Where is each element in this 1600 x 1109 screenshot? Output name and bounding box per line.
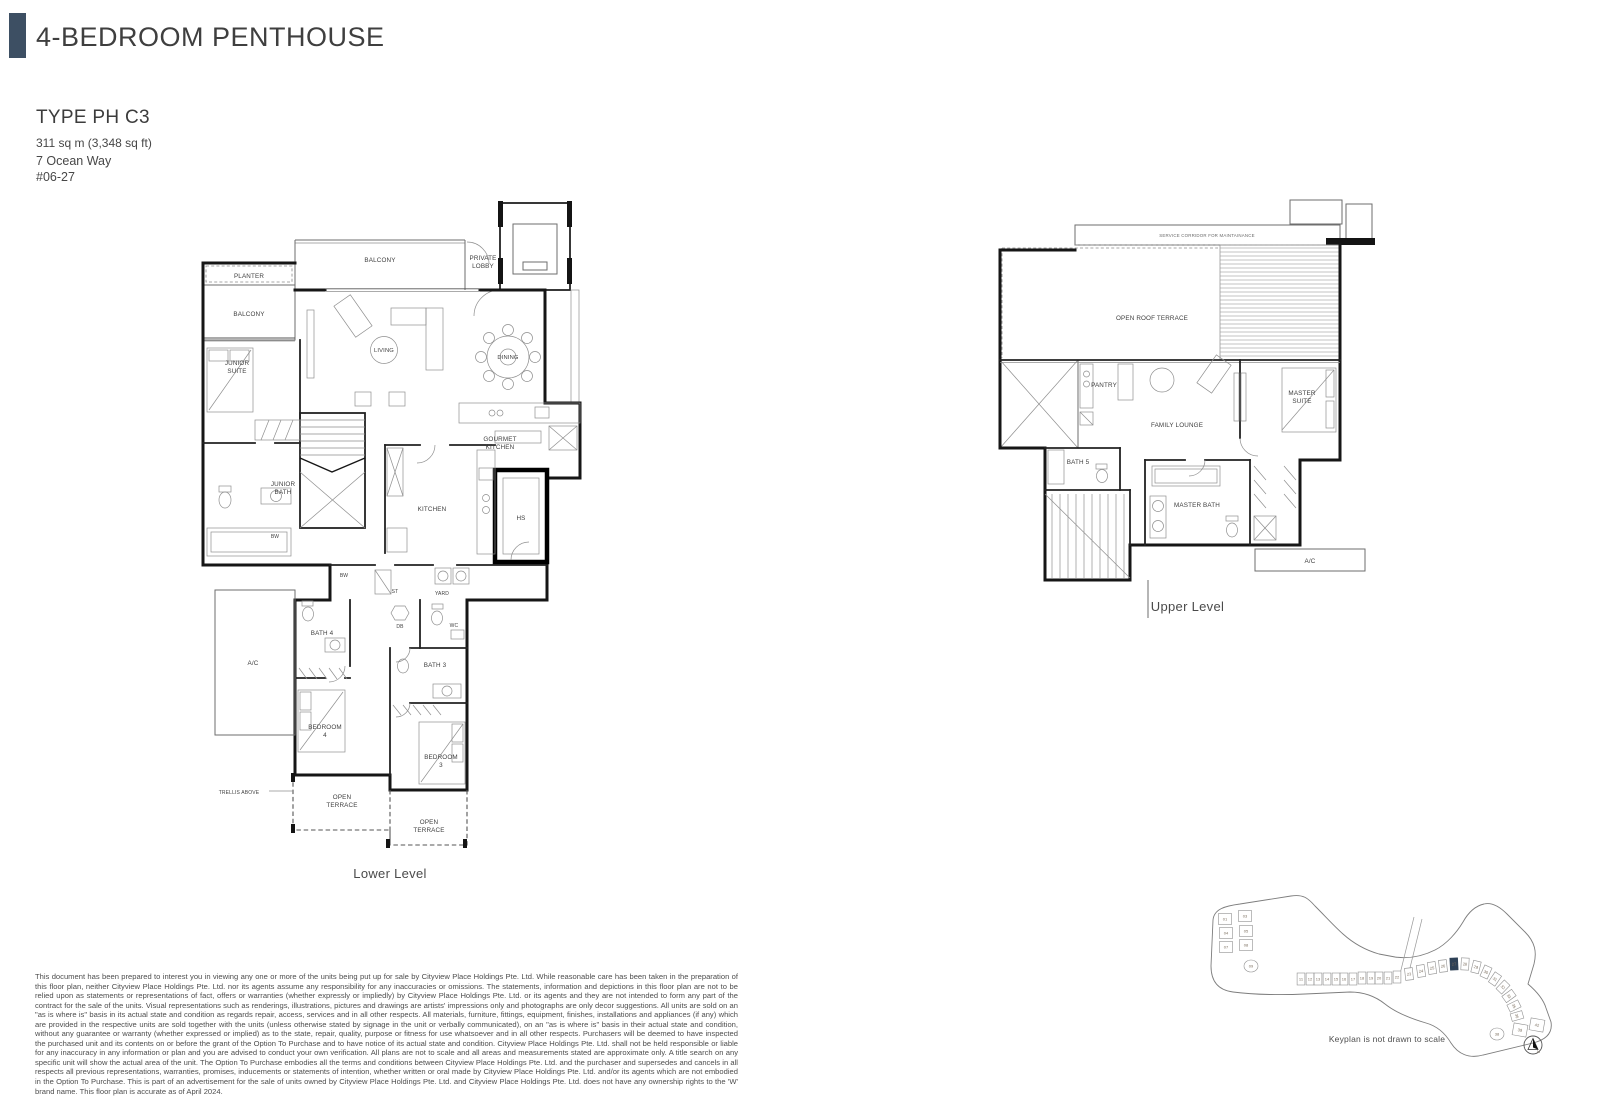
svg-text:19: 19 (1369, 976, 1374, 981)
keyplan-caption: Keyplan is not drawn to scale (1329, 1034, 1445, 1044)
unit-number: #06-27 (36, 170, 75, 184)
keyplan-unit-39: 39 (1512, 1023, 1528, 1037)
label-master-suite-1: MASTER (1288, 390, 1315, 397)
lower-stairs (300, 420, 365, 528)
label-master-bath: MASTER BATH (1174, 502, 1220, 509)
keyplan-unit-20: 20 (1375, 972, 1383, 984)
label-bw-2: BW (340, 573, 348, 579)
keyplan-unit-22: 22 (1393, 971, 1401, 983)
label-family-lounge: FAMILY LOUNGE (1151, 422, 1203, 429)
upper-stairs (1045, 494, 1130, 578)
lower-balcony-planter (203, 240, 500, 341)
label-terrace1-1: OPEN (333, 794, 352, 801)
label-balcony-left: BALCONY (233, 311, 265, 318)
label-balcony-top: BALCONY (364, 257, 396, 264)
label-bedroom3-2: 3 (439, 762, 443, 769)
unit-type: TYPE PH C3 (36, 107, 150, 129)
keyplan-unit-01: 01 (1219, 914, 1232, 925)
svg-text:08: 08 (1244, 943, 1249, 948)
lower-bath-fixtures (302, 601, 464, 698)
lower-junior-suite-furniture (207, 348, 300, 556)
upper-level-plan: SERVICE CORRIDOR FOR MAINTAINANCE OPEN R… (990, 198, 1385, 628)
upper-wardrobe (1254, 466, 1296, 540)
keyplan-unit-21: 21 (1384, 972, 1392, 984)
label-kitchen: KITCHEN (418, 506, 447, 513)
label-gourmet-1: GOURMET (483, 436, 516, 443)
lower-lift (498, 201, 579, 403)
keyplan-unit-11: 11 (1297, 973, 1305, 985)
upper-pantry-fixtures (1080, 364, 1093, 425)
north-compass: N (1524, 1036, 1542, 1054)
keyplan-unit-19: 19 (1367, 972, 1375, 984)
svg-text:01: 01 (1223, 917, 1228, 922)
keyplan-unit-12: 12 (1306, 973, 1314, 985)
svg-text:16: 16 (1342, 977, 1347, 982)
upper-service-corridor (1075, 200, 1375, 245)
label-bw-1: BW (271, 534, 279, 540)
upper-roof-areas (1000, 245, 1340, 448)
keyplan-unit-23: 23 (1404, 968, 1413, 981)
upper-lounge-furniture (1118, 355, 1246, 421)
svg-text:14: 14 (1325, 977, 1330, 982)
label-bath3: BATH 3 (424, 662, 447, 669)
label-bedroom4-2: 4 (323, 732, 327, 739)
lower-windows (325, 289, 480, 292)
label-bedroom3-1: BEDROOM (424, 754, 458, 761)
keyplan-unit-26: 26 (1438, 960, 1447, 973)
keyplan-unit-29: 29 (1471, 960, 1481, 974)
upper-bath5-fixtures (1048, 450, 1108, 484)
label-private-lobby-2: LOBBY (472, 263, 494, 270)
keyplan-unit-36: 36 (1510, 1011, 1524, 1022)
keyplan-unit-07: 07 (1220, 942, 1233, 953)
svg-text:09: 09 (1249, 964, 1254, 969)
label-bedroom4-1: BEDROOM (308, 724, 342, 731)
svg-text:17: 17 (1351, 977, 1356, 982)
lower-level-plan: BALCONY PLANTER BALCONY PRIVATE LOBBY JU… (195, 198, 585, 858)
north-label: N (1537, 1049, 1540, 1054)
keyplan-unit-14: 14 (1323, 973, 1331, 985)
keyplan-unit-08: 08 (1240, 940, 1253, 951)
label-wc: WC (450, 623, 459, 629)
label-junior-suite-2: SUITE (227, 368, 246, 375)
label-trellis: TRELLIS ABOVE (219, 790, 260, 796)
keyplan-unit-35: 35 (1507, 1000, 1521, 1012)
keyplan-unit-03: 03 (1239, 911, 1252, 922)
svg-text:04: 04 (1224, 931, 1229, 936)
svg-text:21: 21 (1386, 976, 1391, 981)
label-bath5: BATH 5 (1067, 459, 1090, 466)
page-title: 4-BEDROOM PENTHOUSE (36, 22, 385, 53)
keyplan-unit-42: 42 (1529, 1018, 1545, 1032)
label-junior-bath-2: BATH (275, 489, 292, 496)
label-gourmet-2: KITCHEN (486, 444, 515, 451)
label-junior-bath-1: JUNIOR (271, 481, 296, 488)
keyplan: 0103040507080911121314151617181920212223… (1195, 882, 1560, 1062)
legal-disclaimer: This document has been prepared to inter… (35, 972, 738, 1096)
keyplan-unit-38: 38 (1490, 1028, 1504, 1040)
svg-text:13: 13 (1316, 977, 1321, 982)
svg-text:38: 38 (1495, 1032, 1500, 1037)
keyplan-unit-15: 15 (1332, 973, 1340, 985)
label-terrace2-2: TERRACE (413, 827, 444, 834)
label-living: LIVING (374, 348, 394, 354)
accent-bar (9, 13, 26, 58)
keyplan-unit-05: 05 (1240, 926, 1253, 937)
label-upper-ac: A/C (1305, 558, 1316, 565)
label-st: ST (392, 589, 399, 595)
keyplan-unit-25: 25 (1427, 962, 1436, 975)
keyplan-unit-30: 30 (1480, 965, 1492, 979)
label-terrace1-2: TERRACE (326, 802, 357, 809)
svg-text:20: 20 (1377, 976, 1382, 981)
keyplan-unit-28: 28 (1461, 958, 1469, 970)
svg-text:03: 03 (1243, 914, 1248, 919)
label-bath4: BATH 4 (311, 630, 334, 637)
label-terrace2-1: OPEN (420, 819, 439, 826)
svg-text:05: 05 (1244, 929, 1249, 934)
keyplan-unit-18: 18 (1358, 972, 1366, 984)
keyplan-unit-27: 27 (1450, 958, 1458, 970)
keyplan-unit-24: 24 (1416, 965, 1425, 978)
label-yard: YARD (435, 591, 449, 597)
label-service-corridor: SERVICE CORRIDOR FOR MAINTAINANCE (1159, 233, 1254, 238)
label-dining: DINING (497, 355, 519, 361)
upper-level-caption: Upper Level (990, 599, 1385, 614)
keyplan-unit-17: 17 (1349, 973, 1357, 985)
label-private-lobby-1: PRIVATE (469, 255, 496, 262)
svg-text:12: 12 (1308, 977, 1313, 982)
svg-text:22: 22 (1395, 975, 1400, 980)
svg-text:07: 07 (1224, 945, 1229, 950)
unit-address: 7 Ocean Way (36, 154, 111, 169)
label-pantry: PANTRY (1091, 382, 1118, 389)
label-open-roof-terrace: OPEN ROOF TERRACE (1116, 315, 1188, 322)
keyplan-unit-04: 04 (1220, 928, 1233, 939)
label-master-suite-2: SUITE (1292, 398, 1311, 405)
keyplan-unit-16: 16 (1340, 973, 1348, 985)
label-junior-suite-1: JUNIOR (225, 360, 250, 367)
lower-yard-fixtures (375, 568, 469, 620)
lower-room-labels: BALCONY PLANTER BALCONY PRIVATE LOBBY JU… (219, 255, 526, 834)
keyplan-units-layer: 0103040507080911121314151617181920212223… (1219, 911, 1545, 1041)
svg-text:18: 18 (1360, 976, 1365, 981)
label-hs: HS (516, 515, 525, 522)
keyplan-unit-31: 31 (1488, 972, 1501, 986)
label-planter: PLANTER (234, 273, 264, 280)
keyplan-unit-13: 13 (1314, 973, 1322, 985)
keyplan-unit-09: 09 (1244, 960, 1258, 972)
floorplan-page: 4-BEDROOM PENTHOUSE TYPE PH C3 311 sq m … (0, 0, 1600, 1109)
svg-text:15: 15 (1334, 977, 1339, 982)
label-db: DB (396, 624, 404, 630)
unit-area: 311 sq m (3,348 sq ft) (36, 136, 152, 150)
lower-level-caption: Lower Level (195, 866, 585, 881)
label-ac: A/C (248, 660, 259, 667)
